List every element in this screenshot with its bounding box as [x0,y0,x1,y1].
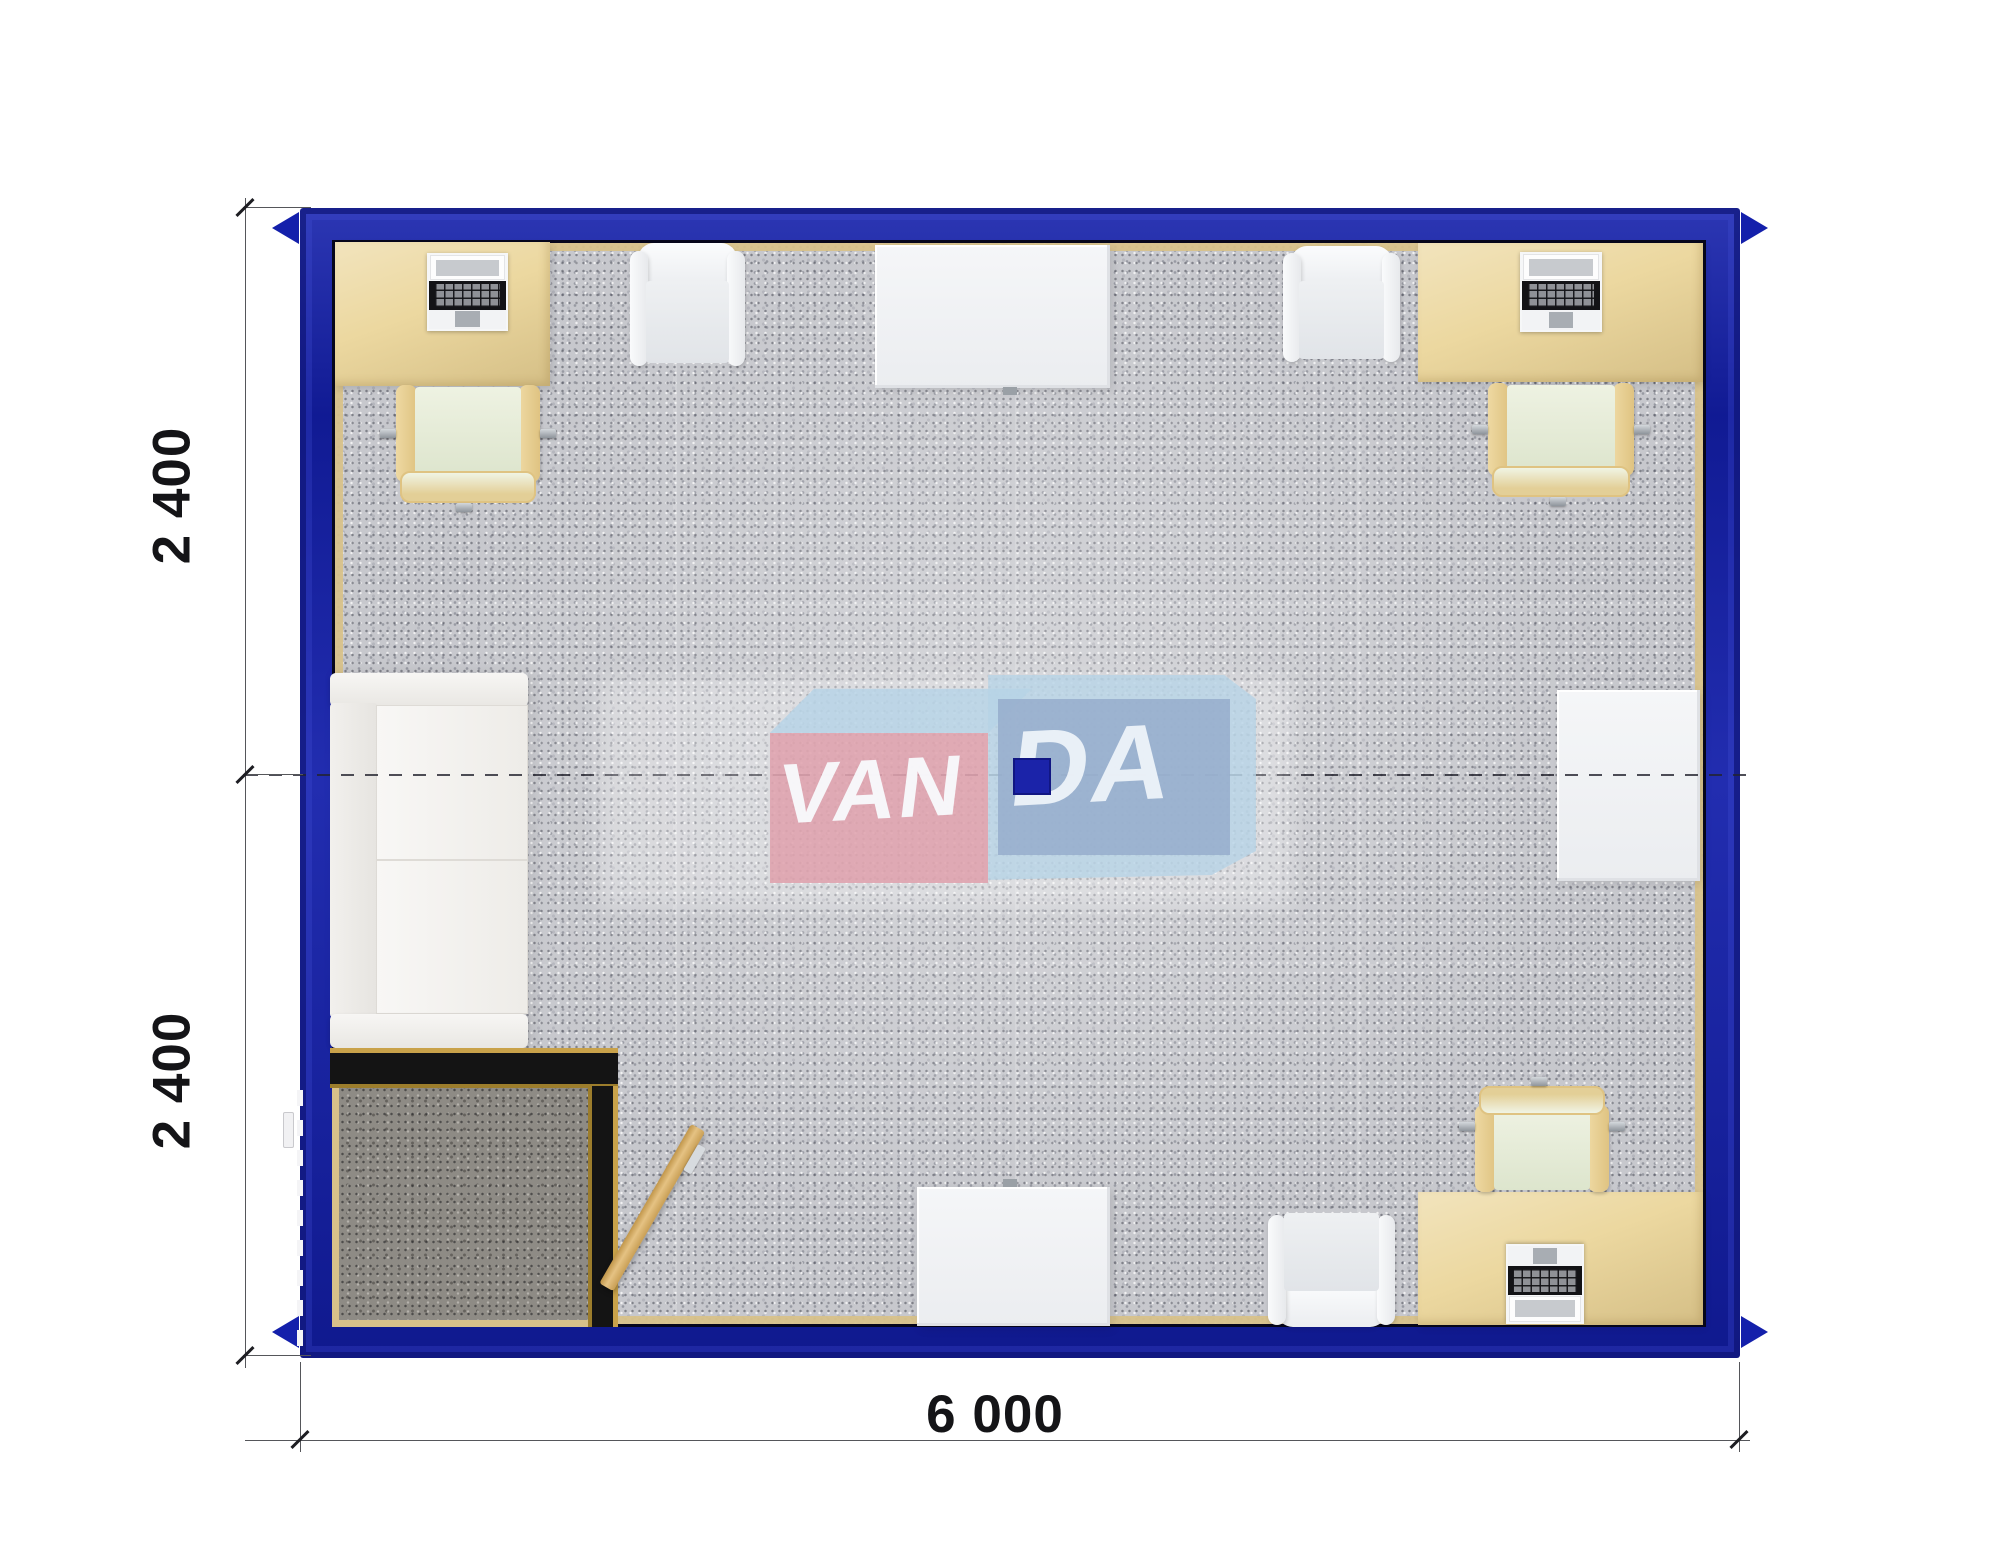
vestibule-floor [332,1086,588,1327]
laptop-palmrest [1522,310,1599,329]
chair-caster [456,503,472,512]
laptop-touchpad [1533,1248,1556,1264]
chair-armrest [1382,253,1400,362]
logo-center-square [1013,758,1051,795]
chair-seat [646,281,729,364]
chair-backrest [400,471,535,503]
laptop-screen-panel [1515,1300,1575,1317]
laptop-palmrest [1508,1246,1581,1265]
extension-line-middle-left [243,774,303,775]
chair-backrest [1479,1086,1605,1115]
extension-line-bottom-left [243,1355,311,1356]
chair-armrest [1488,383,1509,476]
sofa-armrest [330,1014,528,1048]
chair-caster [540,429,556,438]
sofa-backrest [330,703,378,1018]
laptop-keyboard [429,281,505,311]
chair-armrest [1613,383,1634,476]
exterior-door-dashed-line [297,1090,303,1352]
laptop-screen [1509,1296,1581,1321]
laptop-screen [1523,254,1598,279]
chair-caster [1609,1122,1625,1131]
chair-armrest [1588,1105,1609,1192]
corner-arrow-bottom-left-icon [272,1316,299,1348]
laptop-keys [435,284,501,307]
chair-armrest [727,251,745,366]
chair-seat [1494,1109,1590,1190]
office-chair-bottom-right [1475,1086,1609,1192]
table-leg-mark [1003,1179,1017,1187]
watermark-logo: VAN DA [750,655,1270,915]
laptop-screen [430,255,505,280]
chair-caster [1459,1122,1475,1131]
chair-backrest [1492,466,1629,497]
sofa-seat-cushion [376,705,528,860]
vestibule-wall-right [588,1086,618,1327]
extension-line-top-left [243,207,311,208]
chair-caster [1472,425,1488,434]
laptop-touchpad [1549,312,1574,328]
sofa-seat-cushion [376,860,528,1014]
laptop-screen-panel [1529,259,1592,276]
laptop-palmrest [429,310,505,329]
laptop-top-right [1520,252,1602,332]
visitor-chair-top-right [1283,246,1400,364]
chair-armrest [1475,1105,1496,1192]
laptop-keys [1528,284,1594,308]
table-right-wall [1557,690,1700,881]
table-bottom-center [917,1187,1110,1326]
visitor-chair-top-left [630,243,745,368]
table-leg-mark [1003,387,1017,395]
chair-seat [1507,385,1615,472]
vestibule-wall-top [330,1048,618,1088]
chair-armrest [519,385,540,482]
dimension-line-left [245,198,246,1368]
chair-armrest [396,385,417,482]
corner-arrow-top-right-icon [1741,212,1768,244]
laptop-bottom-right [1506,1244,1584,1324]
table-top-center [875,245,1110,388]
laptop-top-left [427,253,508,331]
laptop-keys [1513,1269,1576,1293]
dimension-label-left-lower: 2 400 [146,971,199,1191]
exterior-door-handle [283,1112,294,1148]
chair-seat [1299,281,1384,359]
dimension-label-left-upper: 2 400 [146,386,199,606]
office-chair-top-left [396,385,540,503]
logo-text-van: VAN [774,742,970,838]
chair-caster [1634,425,1650,434]
chair-caster [380,429,396,438]
chair-seat [1284,1213,1379,1292]
chair-caster [1531,1077,1547,1086]
laptop-keyboard [1508,1265,1581,1295]
chair-caster [1550,497,1566,506]
laptop-screen-panel [436,260,498,276]
visitor-chair-bottom [1268,1208,1395,1327]
dimension-label-bottom-width: 6 000 [885,1388,1105,1441]
sofa-armrest [330,673,528,707]
floor-plan-canvas: 2 400 2 400 6 000 [0,0,2000,1561]
chair-seat [415,387,521,477]
office-chair-top-right [1488,383,1634,497]
corner-arrow-bottom-right-icon [1741,1316,1768,1348]
chair-armrest [1377,1215,1395,1325]
sofa [330,673,528,1048]
corner-arrow-top-left-icon [272,212,299,244]
laptop-keyboard [1522,281,1599,311]
laptop-touchpad [455,311,479,327]
